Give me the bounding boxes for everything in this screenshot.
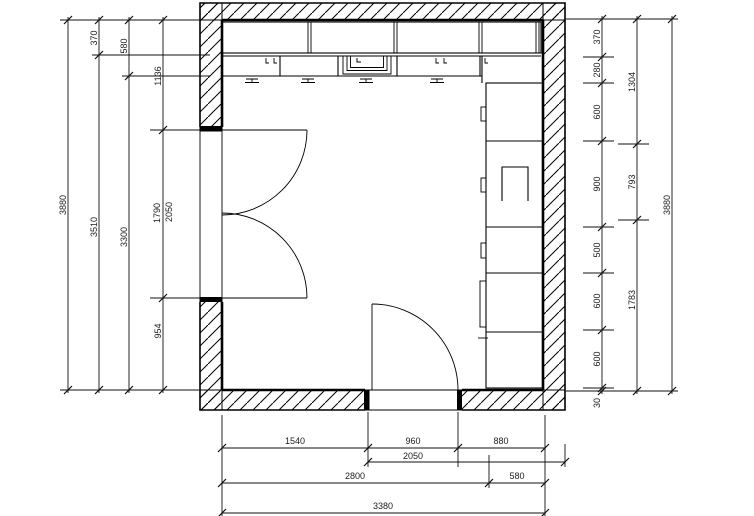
dim-label-right-zone-0: 1304	[627, 72, 637, 92]
dim-label-door-offset-bottom: 954	[153, 323, 163, 338]
single-swing-door	[372, 304, 458, 390]
dim-label-remainder-2: 3300	[119, 227, 129, 247]
handle-2	[481, 178, 486, 192]
dim-label-right-seg-2: 600	[592, 104, 602, 119]
dim-label-bottom-total: 3380	[373, 501, 393, 511]
appliance-door-leaf	[480, 281, 486, 327]
dim-label-remainder-1: 3510	[89, 217, 99, 237]
dim-label-bottom-seg-1: 960	[405, 436, 420, 446]
left-wall-upper	[200, 3, 222, 131]
dim-label-right-zone-2: 1783	[627, 290, 637, 310]
opening-reveal-lines	[200, 131, 458, 410]
dim-label-right-total: 3880	[662, 195, 672, 215]
dim-label-right-seg-3: 900	[592, 176, 602, 191]
dim-label-right-zone-1: 793	[627, 174, 637, 189]
handle-3	[481, 243, 486, 258]
dim-label-right-seg-5: 600	[592, 293, 602, 308]
right-cabinet-run	[478, 83, 543, 388]
bottom-wall-right	[458, 390, 565, 410]
dim-label-left-total: 3880	[58, 195, 68, 215]
wall-cabinet-dividers	[308, 22, 539, 53]
dim-label-base-cab-depth: 580	[119, 38, 129, 53]
double-swing-door	[222, 130, 307, 298]
dimension-chain-bottom: 1540 960 880 2050 2800 580 3380	[218, 412, 569, 516]
dim-label-upper-cab-depth: 370	[89, 30, 99, 45]
double-door-swing-arcs	[222, 130, 307, 298]
single-door-swing-arc	[372, 304, 458, 390]
cabinet-feet	[245, 79, 444, 83]
floor-plan-canvas: 3880 370 3510 580 3300 1136 1790 2050 95…	[0, 0, 754, 516]
dim-label-bottom-seg-2: 880	[493, 436, 508, 446]
walls	[200, 3, 565, 410]
dim-label-door-offset-top: 1136	[153, 66, 163, 85]
dim-label-right-seg-6: 600	[592, 351, 602, 366]
bottom-dimension-lines	[222, 412, 565, 516]
dim-label-door-frame: 2050	[164, 202, 174, 222]
bottom-wall-left	[200, 390, 369, 410]
dim-label-bottom-seg-0: 1540	[285, 436, 305, 446]
top-wall	[200, 3, 565, 20]
wall-cabinet-row	[222, 22, 541, 56]
right-run-outline	[486, 83, 543, 388]
door-jamb-bottom-left	[364, 390, 369, 410]
sink-symbol	[343, 56, 391, 74]
door-jamb-left-bottom	[200, 297, 222, 302]
dim-label-bottom-zone-0: 2800	[345, 471, 365, 481]
dim-label-right-seg-7: 30	[592, 398, 602, 408]
cabinet-hinge-marks	[266, 58, 488, 63]
base-cabinet-row	[222, 56, 543, 83]
wall-cabinet-outline	[222, 22, 541, 53]
left-dimension-lines	[60, 17, 210, 393]
dim-label-right-seg-4: 500	[592, 242, 602, 257]
door-jamb-left-top	[200, 126, 222, 131]
outer-wall-edge	[200, 3, 565, 410]
dimension-chain-left: 3880 370 3510 580 3300 1136 1790 2050 95…	[58, 16, 210, 394]
dim-label-right-seg-0: 370	[592, 29, 602, 44]
dim-label-bottom-frame: 2050	[403, 451, 423, 461]
handle-1	[481, 107, 486, 121]
dimension-chain-right: 370 280 600 900 500 600 600 30 1304 793 …	[565, 15, 678, 408]
cooker-symbol	[502, 167, 528, 201]
base-cabinet-outline	[222, 56, 543, 83]
door-jamb-bottom-right	[457, 390, 462, 410]
dim-label-bottom-zone-1: 580	[509, 471, 524, 481]
dim-label-right-seg-1: 280	[592, 62, 602, 77]
right-wall	[543, 3, 565, 410]
dim-label-door-opening: 1790	[152, 203, 162, 223]
right-run-dividers	[486, 141, 543, 332]
kitchen-floor-plan: 3880 370 3510 580 3300 1136 1790 2050 95…	[0, 0, 754, 516]
